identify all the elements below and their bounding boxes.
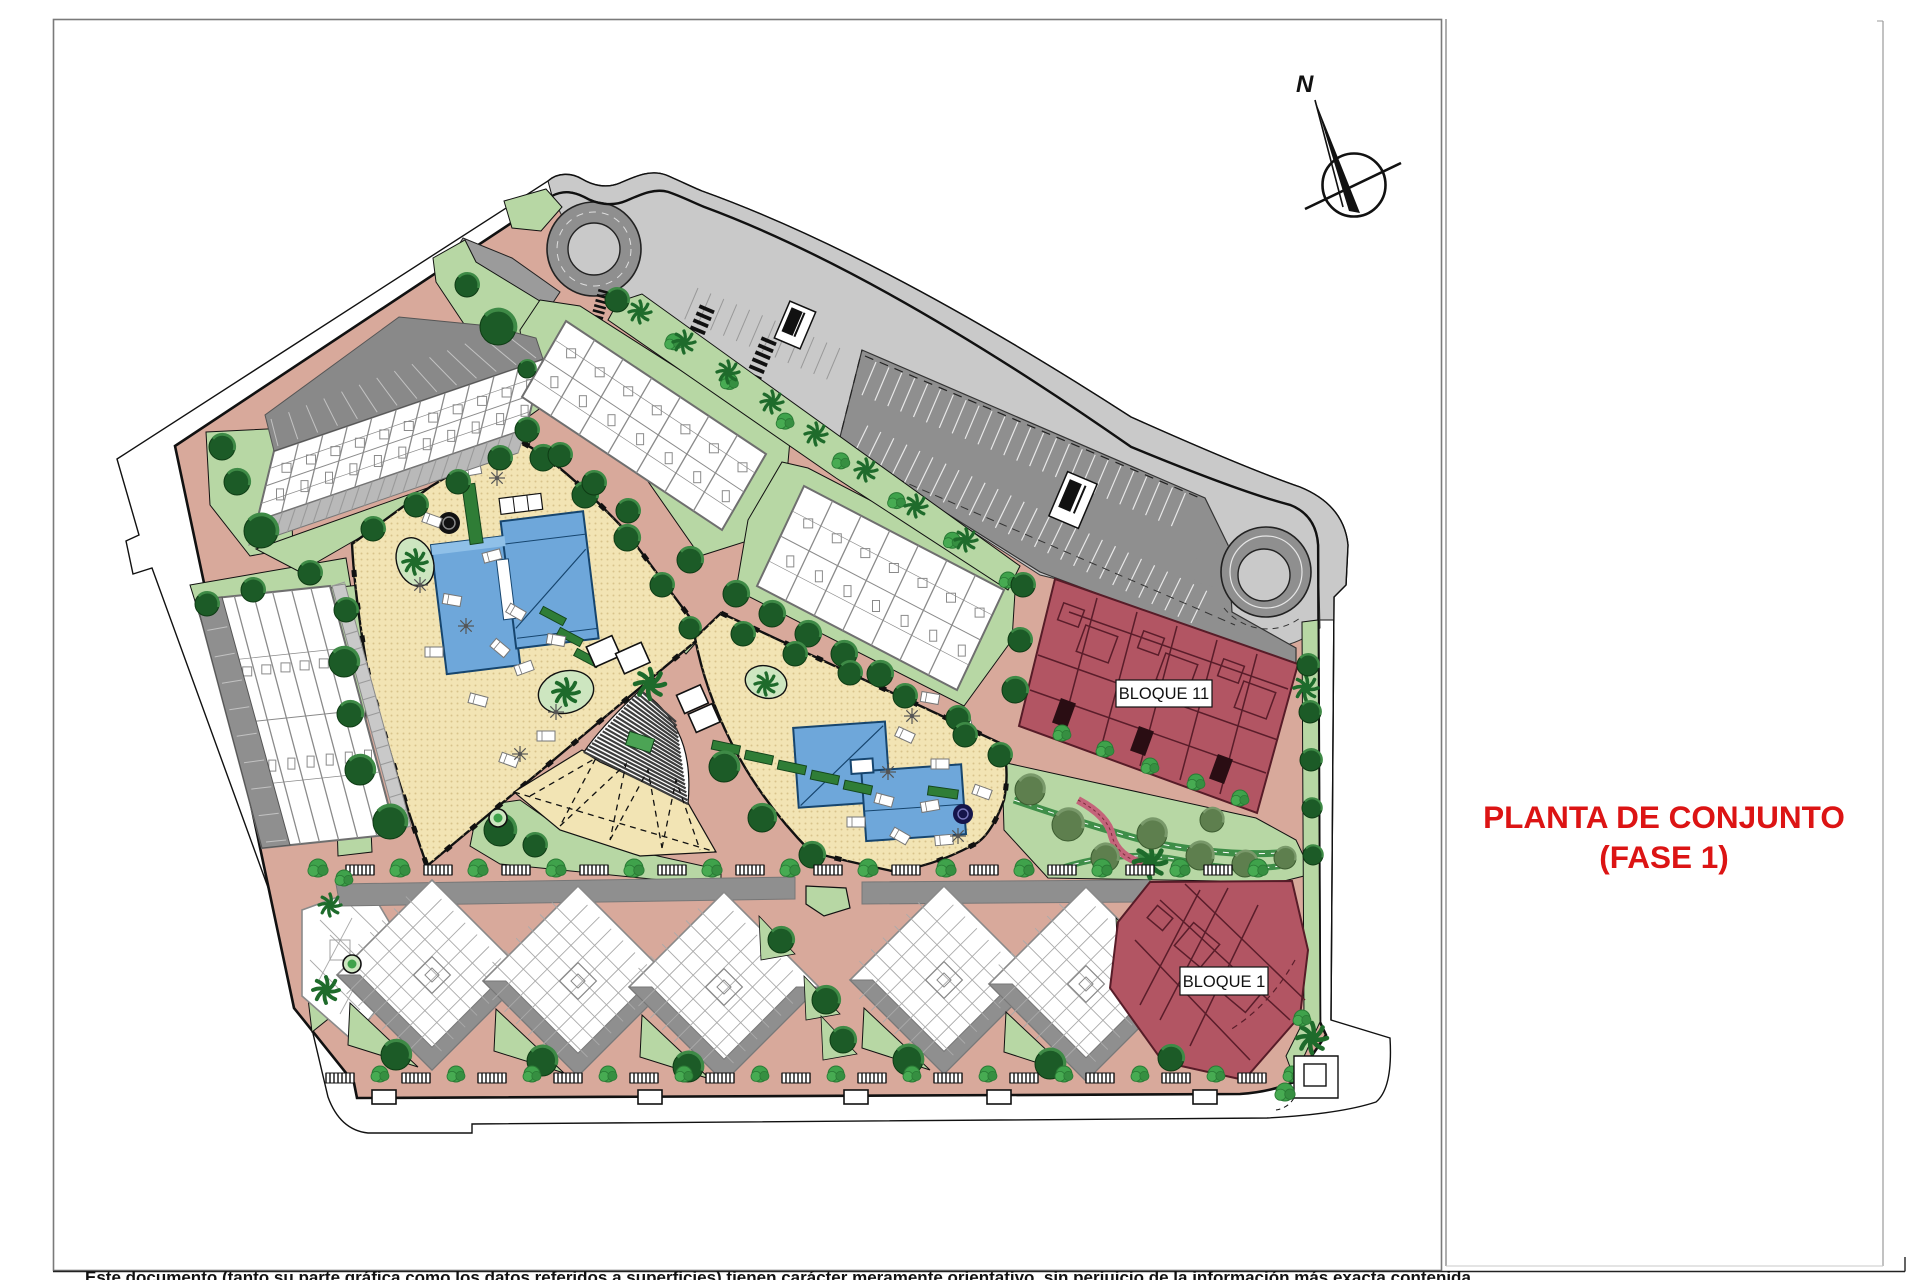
svg-text:BLOQUE 1: BLOQUE 1: [1183, 973, 1266, 991]
svg-text:(FASE 1): (FASE 1): [1599, 839, 1729, 875]
svg-text:BLOQUE 11: BLOQUE 11: [1119, 685, 1209, 703]
svg-text:PLANTA DE CONJUNTO: PLANTA DE CONJUNTO: [1483, 799, 1845, 835]
svg-text:Este documento (tanto su parte: Este documento (tanto su parte gráfica c…: [85, 1268, 1471, 1280]
svg-text:N: N: [1296, 71, 1314, 98]
